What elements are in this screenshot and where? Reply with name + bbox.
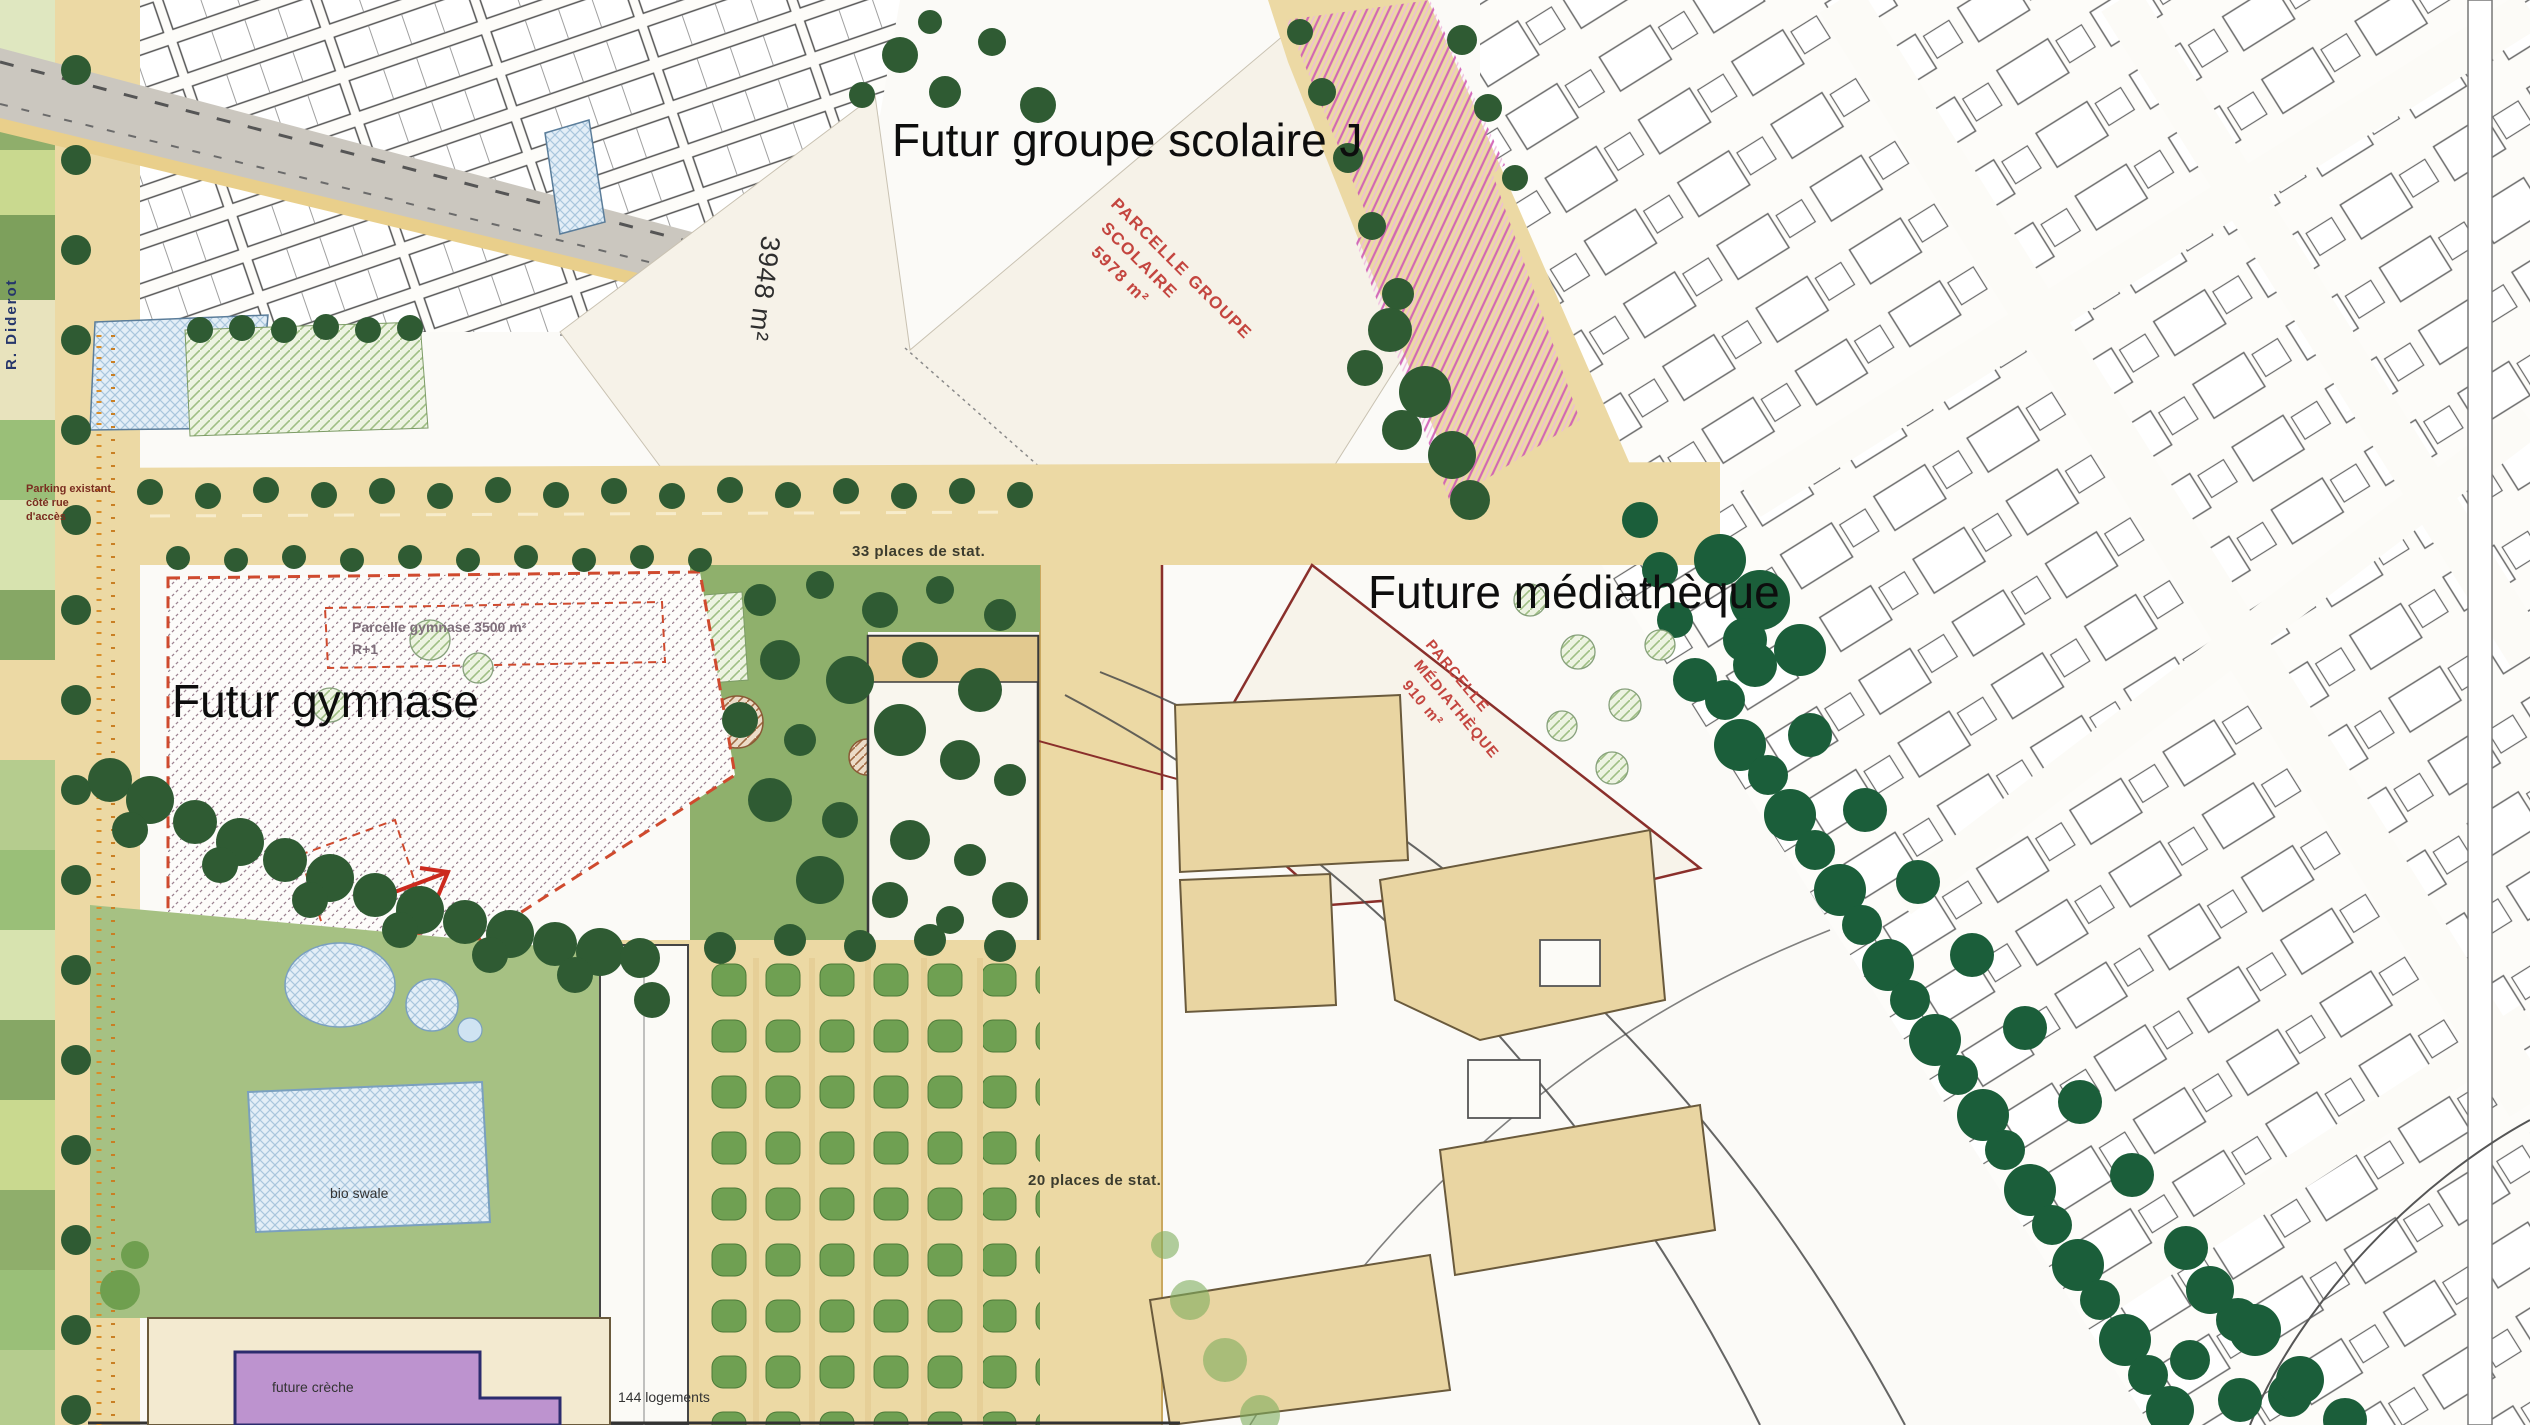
street-name-label: R. Diderot: [3, 278, 20, 370]
masterplan-svg: Futur groupe scolaire J Future médiathèq…: [0, 0, 2530, 1425]
left-garden-strips: [0, 0, 55, 1425]
masterplan-map: Futur groupe scolaire J Future médiathèq…: [0, 0, 2530, 1425]
housing-count-label: 144 logements: [618, 1389, 710, 1405]
left-note-line1: Parking existant: [26, 483, 111, 495]
left-note-line2: côté rue: [26, 497, 69, 509]
parking-south-label: 20 places de stat.: [1028, 1172, 1161, 1189]
label-school: Futur groupe scolaire J: [892, 114, 1362, 166]
left-note-line3: d'accès: [26, 511, 66, 523]
label-gymnase: Futur gymnase: [172, 675, 479, 727]
pond-label: bio swale: [330, 1185, 389, 1201]
creche-label: future crèche: [272, 1379, 354, 1395]
label-mediatheque: Future médiathèque: [1368, 566, 1780, 618]
gymnase-floors-note: R+1: [352, 641, 378, 657]
creche-block: [148, 1318, 610, 1425]
gymnase-parcel-note: Parcelle gymnase 3500 m²: [352, 619, 527, 635]
parking-north-label: 33 places de stat.: [852, 543, 985, 560]
